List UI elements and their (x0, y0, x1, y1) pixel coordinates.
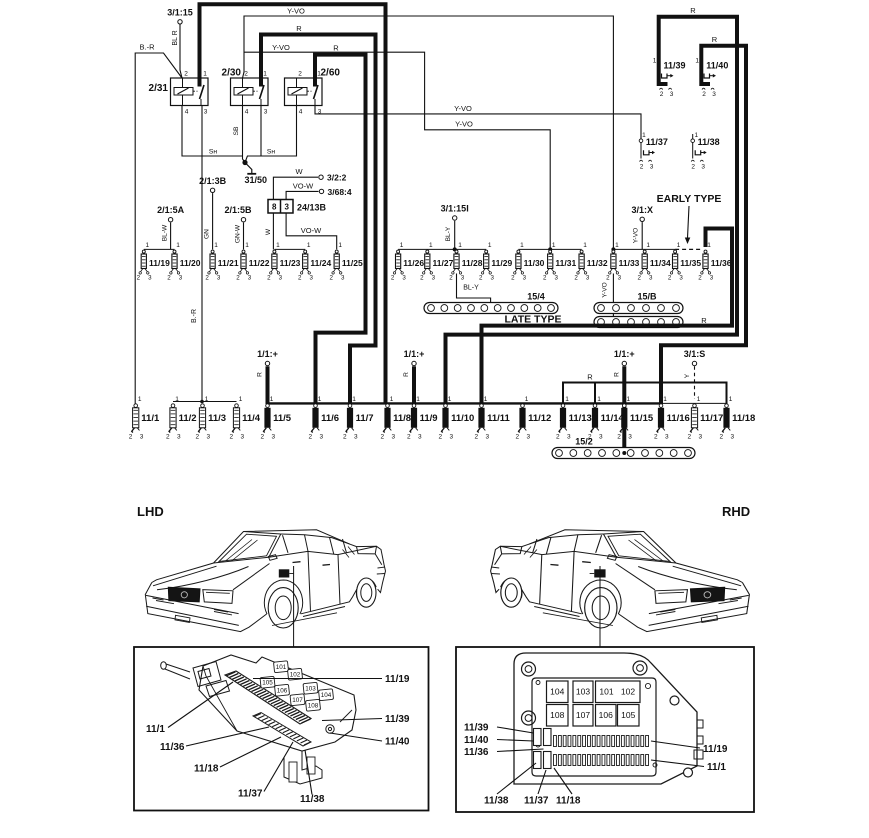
svg-text:2: 2 (474, 433, 478, 440)
svg-text:3: 3 (618, 275, 622, 282)
svg-text:1: 1 (597, 396, 601, 403)
svg-text:1: 1 (458, 242, 462, 249)
svg-text:107: 107 (292, 697, 303, 704)
svg-text:1: 1 (276, 242, 280, 249)
svg-text:1/1:+: 1/1:+ (404, 349, 425, 359)
svg-text:R: R (296, 24, 302, 33)
svg-text:2/30: 2/30 (222, 68, 242, 79)
svg-text:1: 1 (203, 71, 207, 78)
svg-text:1: 1 (145, 242, 149, 249)
svg-text:2: 2 (329, 275, 333, 282)
svg-text:GN-W: GN-W (235, 224, 242, 243)
svg-text:EARLY TYPE: EARLY TYPE (657, 193, 722, 205)
svg-text:R: R (403, 372, 410, 377)
svg-text:2: 2 (244, 71, 248, 78)
svg-text:11/37: 11/37 (238, 789, 263, 800)
svg-text:11/18: 11/18 (194, 764, 219, 775)
svg-text:11/19: 11/19 (703, 744, 728, 755)
svg-text:2: 2 (479, 275, 483, 282)
svg-text:11/6: 11/6 (321, 413, 339, 424)
svg-text:1: 1 (338, 242, 342, 249)
svg-text:11/40: 11/40 (706, 61, 728, 71)
svg-text:3: 3 (649, 275, 653, 282)
svg-text:3/1:15I: 3/1:15I (441, 204, 469, 214)
svg-text:2: 2 (137, 275, 141, 282)
svg-text:3: 3 (240, 433, 244, 440)
svg-text:11/13: 11/13 (569, 413, 592, 424)
svg-text:11/14: 11/14 (601, 413, 625, 424)
svg-text:3: 3 (179, 275, 183, 282)
svg-text:1: 1 (138, 396, 142, 403)
svg-text:1: 1 (552, 242, 556, 249)
svg-text:3: 3 (490, 275, 494, 282)
svg-text:3/1:15: 3/1:15 (167, 7, 193, 17)
svg-text:2: 2 (449, 275, 453, 282)
svg-text:1: 1 (653, 58, 657, 65)
svg-text:2: 2 (617, 433, 621, 440)
svg-text:B.-R: B.-R (140, 43, 156, 52)
svg-text:3: 3 (670, 91, 674, 98)
svg-text:11/28: 11/28 (462, 258, 483, 268)
svg-text:2/60: 2/60 (321, 68, 341, 79)
svg-text:Y-VO: Y-VO (455, 120, 473, 129)
svg-text:15/B: 15/B (637, 292, 657, 302)
svg-text:2/31: 2/31 (149, 83, 169, 94)
svg-text:2: 2 (195, 433, 199, 440)
svg-text:11/19: 11/19 (385, 674, 410, 685)
svg-text:1/1:+: 1/1:+ (614, 349, 635, 359)
svg-text:106: 106 (599, 710, 613, 720)
svg-text:1: 1 (176, 242, 180, 249)
svg-text:2: 2 (229, 433, 233, 440)
svg-text:11/1: 11/1 (141, 413, 160, 424)
svg-text:1: 1 (263, 71, 267, 78)
svg-text:2: 2 (298, 275, 302, 282)
svg-text:Y: Y (684, 373, 691, 378)
svg-text:1: 1 (615, 242, 619, 249)
svg-text:Y-VO: Y-VO (272, 43, 290, 52)
svg-text:3: 3 (354, 433, 358, 440)
svg-text:2: 2 (308, 433, 312, 440)
svg-text:VO-W: VO-W (301, 226, 322, 235)
svg-text:2: 2 (702, 91, 706, 98)
svg-text:11/30: 11/30 (524, 258, 545, 268)
svg-text:1: 1 (695, 58, 699, 65)
svg-text:1: 1 (583, 242, 587, 249)
svg-text:1: 1 (525, 396, 529, 403)
svg-text:1: 1 (239, 396, 243, 403)
svg-text:3: 3 (432, 275, 436, 282)
svg-text:3: 3 (309, 275, 313, 282)
svg-text:1: 1 (400, 242, 404, 249)
svg-text:31/50: 31/50 (245, 175, 268, 185)
svg-text:11/12: 11/12 (528, 413, 551, 424)
svg-text:11/36: 11/36 (711, 258, 732, 268)
svg-text:1: 1 (307, 242, 311, 249)
svg-text:108: 108 (308, 702, 319, 709)
svg-text:11/15: 11/15 (630, 413, 654, 424)
svg-text:3: 3 (449, 433, 453, 440)
svg-text:24/13B: 24/13B (297, 203, 327, 213)
svg-text:11/21: 11/21 (218, 258, 239, 268)
svg-text:Sн: Sн (209, 149, 218, 156)
svg-text:BL-Y: BL-Y (463, 285, 479, 292)
svg-text:3: 3 (391, 433, 395, 440)
svg-text:11/35: 11/35 (680, 258, 701, 268)
svg-text:2: 2 (267, 275, 271, 282)
svg-text:BL-Y: BL-Y (445, 226, 452, 241)
svg-text:11/31: 11/31 (555, 258, 576, 268)
svg-text:2: 2 (543, 275, 547, 282)
svg-text:3: 3 (402, 275, 406, 282)
svg-text:102: 102 (621, 687, 635, 697)
svg-text:15/4: 15/4 (527, 292, 545, 302)
svg-text:4: 4 (245, 109, 249, 116)
svg-text:3: 3 (284, 203, 289, 212)
svg-text:3: 3 (730, 433, 734, 440)
svg-text:3: 3 (679, 275, 683, 282)
svg-text:R: R (333, 43, 339, 52)
svg-text:Y-VO: Y-VO (287, 7, 305, 16)
svg-text:3: 3 (418, 433, 422, 440)
svg-text:2: 2 (515, 433, 519, 440)
svg-text:2: 2 (391, 275, 395, 282)
svg-text:3: 3 (318, 109, 322, 116)
svg-text:2: 2 (166, 433, 170, 440)
svg-text:11/32: 11/32 (587, 258, 608, 268)
svg-text:11/34: 11/34 (650, 258, 671, 268)
svg-text:RHD: RHD (722, 504, 750, 519)
svg-text:11/1: 11/1 (146, 724, 165, 735)
svg-text:1: 1 (729, 396, 733, 403)
svg-text:3/68:4: 3/68:4 (328, 187, 352, 197)
svg-text:3: 3 (710, 275, 714, 282)
svg-text:2: 2 (129, 433, 133, 440)
svg-text:2: 2 (511, 275, 515, 282)
svg-text:11/39: 11/39 (385, 714, 410, 725)
svg-text:11/10: 11/10 (451, 413, 474, 424)
svg-text:3: 3 (586, 275, 590, 282)
svg-text:1: 1 (677, 242, 681, 249)
svg-text:R: R (701, 316, 707, 325)
svg-text:11/18: 11/18 (556, 796, 581, 807)
svg-text:11/1: 11/1 (707, 762, 726, 773)
svg-text:2: 2 (407, 433, 411, 440)
svg-text:11/16: 11/16 (667, 413, 690, 424)
svg-text:106: 106 (277, 687, 288, 694)
svg-text:2: 2 (637, 275, 641, 282)
svg-text:11/25: 11/25 (342, 258, 363, 268)
svg-text:Y-VO: Y-VO (602, 282, 609, 298)
svg-text:101: 101 (599, 687, 613, 697)
svg-text:11/9: 11/9 (420, 413, 438, 424)
svg-text:2: 2 (640, 164, 644, 171)
svg-text:3: 3 (217, 275, 221, 282)
svg-text:11/36: 11/36 (464, 747, 489, 758)
svg-text:2: 2 (260, 433, 264, 440)
svg-text:1: 1 (520, 242, 524, 249)
svg-text:3: 3 (319, 433, 323, 440)
svg-text:2: 2 (205, 275, 209, 282)
svg-text:107: 107 (576, 710, 590, 720)
svg-text:B.-R: B.-R (191, 309, 198, 323)
svg-text:2: 2 (298, 71, 302, 78)
svg-text:2: 2 (236, 275, 240, 282)
svg-text:1: 1 (484, 396, 488, 403)
svg-text:11/39: 11/39 (464, 723, 489, 734)
svg-text:Sн: Sн (267, 149, 276, 156)
svg-text:11/38: 11/38 (300, 794, 325, 805)
svg-text:11/26: 11/26 (403, 258, 424, 268)
svg-text:3: 3 (567, 433, 571, 440)
svg-text:11/8: 11/8 (393, 413, 411, 424)
svg-text:11/17: 11/17 (700, 413, 723, 424)
svg-text:1: 1 (205, 396, 209, 403)
svg-text:1: 1 (245, 242, 249, 249)
svg-text:2: 2 (698, 275, 702, 282)
svg-text:11/39: 11/39 (664, 61, 686, 71)
svg-text:105: 105 (621, 710, 635, 720)
svg-text:3: 3 (485, 433, 489, 440)
svg-text:102: 102 (290, 671, 301, 678)
svg-text:1: 1 (488, 242, 492, 249)
svg-text:1: 1 (646, 242, 650, 249)
svg-text:1: 1 (429, 242, 433, 249)
svg-text:105: 105 (262, 679, 273, 686)
svg-text:1: 1 (270, 396, 274, 403)
svg-text:BL R: BL R (172, 30, 179, 45)
svg-text:15/2: 15/2 (575, 437, 593, 447)
svg-text:3: 3 (148, 275, 152, 282)
svg-text:2/1:5A: 2/1:5A (157, 205, 185, 215)
svg-text:1: 1 (390, 396, 394, 403)
svg-text:11/33: 11/33 (619, 258, 640, 268)
svg-text:11/40: 11/40 (464, 735, 489, 746)
svg-text:GN: GN (204, 229, 211, 239)
svg-text:2: 2 (691, 164, 695, 171)
svg-text:1: 1 (214, 242, 218, 249)
svg-text:11/2: 11/2 (179, 413, 197, 424)
svg-text:11/7: 11/7 (356, 413, 374, 424)
svg-text:8: 8 (272, 203, 277, 212)
svg-text:1: 1 (626, 396, 630, 403)
svg-text:11/27: 11/27 (433, 258, 454, 268)
svg-text:1/1:+: 1/1:+ (257, 349, 278, 359)
svg-text:3: 3 (599, 433, 603, 440)
svg-text:W: W (265, 228, 272, 235)
svg-text:11/29: 11/29 (491, 258, 512, 268)
svg-text:11/37: 11/37 (646, 137, 668, 147)
svg-text:2: 2 (380, 433, 384, 440)
svg-text:11/36: 11/36 (160, 742, 185, 753)
svg-text:2: 2 (556, 433, 560, 440)
svg-text:1: 1 (318, 396, 322, 403)
svg-text:LHD: LHD (137, 504, 164, 519)
svg-text:3: 3 (628, 433, 632, 440)
svg-text:3: 3 (650, 164, 654, 171)
svg-text:4: 4 (185, 109, 189, 116)
svg-text:3: 3 (279, 275, 283, 282)
svg-text:2: 2 (687, 433, 691, 440)
svg-text:1: 1 (352, 396, 356, 403)
svg-text:R: R (257, 372, 264, 377)
svg-text:1: 1 (175, 396, 179, 403)
svg-text:3: 3 (523, 275, 527, 282)
svg-text:1: 1 (565, 396, 569, 403)
svg-text:R: R (613, 372, 620, 377)
svg-text:11/4: 11/4 (242, 413, 261, 424)
svg-text:3: 3 (341, 275, 345, 282)
svg-text:Y-VO: Y-VO (454, 104, 472, 113)
svg-text:3: 3 (140, 433, 144, 440)
svg-text:1: 1 (416, 396, 420, 403)
svg-text:3: 3 (698, 433, 702, 440)
svg-text:3/2:2: 3/2:2 (327, 173, 347, 183)
svg-text:11/20: 11/20 (180, 258, 201, 268)
svg-text:1: 1 (697, 396, 701, 403)
svg-text:11/22: 11/22 (249, 258, 270, 268)
svg-text:2: 2 (438, 433, 442, 440)
svg-text:R: R (712, 35, 718, 44)
svg-text:11/37: 11/37 (524, 796, 549, 807)
svg-text:2: 2 (184, 71, 188, 78)
svg-text:VO-W: VO-W (293, 182, 314, 191)
svg-text:2: 2 (343, 433, 347, 440)
svg-text:103: 103 (305, 685, 316, 692)
svg-text:3/1:S: 3/1:S (684, 349, 706, 359)
svg-text:11/11: 11/11 (487, 413, 510, 424)
svg-text:SB: SB (233, 126, 240, 136)
svg-text:2: 2 (167, 275, 171, 282)
svg-text:W: W (295, 167, 303, 176)
svg-text:R: R (587, 373, 593, 382)
svg-text:2: 2 (719, 433, 723, 440)
svg-text:2: 2 (606, 275, 610, 282)
svg-text:11/19: 11/19 (149, 258, 170, 268)
svg-text:3: 3 (271, 433, 275, 440)
svg-text:3: 3 (526, 433, 530, 440)
svg-text:101: 101 (276, 664, 287, 671)
svg-text:3: 3 (177, 433, 181, 440)
svg-text:11/24: 11/24 (310, 258, 331, 268)
svg-text:1: 1 (707, 242, 711, 249)
svg-text:11/3: 11/3 (208, 413, 226, 424)
svg-text:2/1:5B: 2/1:5B (224, 205, 252, 215)
svg-text:11/23: 11/23 (280, 258, 301, 268)
svg-text:2: 2 (660, 91, 664, 98)
svg-text:2: 2 (654, 433, 658, 440)
svg-text:4: 4 (299, 109, 303, 116)
svg-text:R: R (690, 6, 696, 15)
svg-text:108: 108 (550, 710, 564, 720)
svg-text:3/1:X: 3/1:X (631, 205, 653, 215)
svg-text:3: 3 (264, 109, 268, 116)
svg-text:3: 3 (665, 433, 669, 440)
svg-text:2: 2 (574, 275, 578, 282)
svg-text:11/40: 11/40 (385, 737, 410, 748)
svg-text:104: 104 (550, 687, 564, 697)
svg-text:Y-VO: Y-VO (633, 228, 640, 244)
svg-text:11/5: 11/5 (273, 413, 292, 424)
svg-text:3: 3 (204, 109, 208, 116)
svg-text:103: 103 (576, 687, 590, 697)
svg-text:3: 3 (461, 275, 465, 282)
svg-text:BL-W: BL-W (162, 224, 169, 241)
svg-text:3: 3 (554, 275, 558, 282)
svg-text:2: 2 (420, 275, 424, 282)
svg-text:11/38: 11/38 (698, 137, 720, 147)
svg-text:3: 3 (206, 433, 210, 440)
svg-text:3: 3 (712, 91, 716, 98)
svg-text:1: 1 (663, 396, 667, 403)
svg-text:3: 3 (701, 164, 705, 171)
svg-text:1: 1 (448, 396, 452, 403)
svg-text:104: 104 (321, 692, 332, 699)
svg-text:2/1:3B: 2/1:3B (199, 176, 227, 186)
svg-text:11/38: 11/38 (484, 796, 509, 807)
svg-text:11/18: 11/18 (732, 413, 755, 424)
svg-text:2: 2 (668, 275, 672, 282)
svg-text:3: 3 (248, 275, 252, 282)
